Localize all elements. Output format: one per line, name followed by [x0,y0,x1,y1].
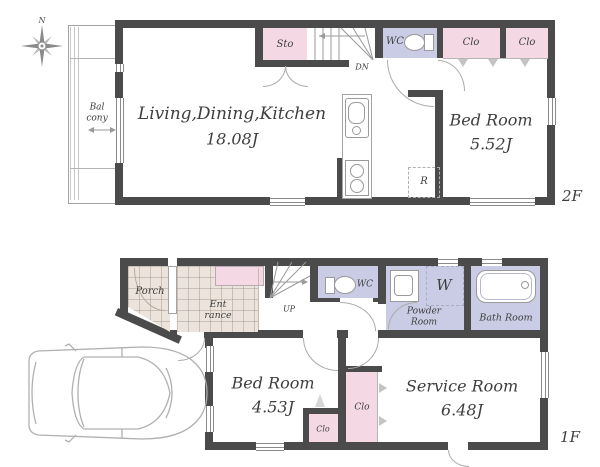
wall-segment [115,20,123,64]
door-arc [285,66,308,87]
car-illustration [22,342,212,444]
balcony-divider [70,168,116,169]
stairs-1f-icon [268,262,310,300]
wall-segment [378,330,548,338]
stairs-down-label: DN [355,62,368,71]
closet-track-line [377,372,378,442]
wall-segment [338,338,346,442]
wall-segment [547,20,555,98]
stove-burner-icon [350,179,364,193]
stairs-2f-icon [307,28,375,60]
washer-label: W [436,277,451,295]
wall-segment [375,20,383,58]
entrance-shelf [215,266,264,286]
closet-1-2f-label: Clo [463,37,480,49]
door-arc [448,450,469,467]
door-arc [263,66,286,87]
compass-north-label: N [38,16,47,25]
sliding-door-mark [379,383,387,393]
bedroom-1f-area-label: 4.53J [252,399,294,418]
kitchen-faucet-icon [352,126,361,135]
bedroom-1f-label: Bed Room [231,375,314,394]
entrance-label-line1: Ent [204,299,231,310]
wall-segment [170,330,177,338]
closet-2-2f-label: Clo [519,37,536,49]
fridge-label: R [420,176,428,188]
window-marker [270,198,305,206]
wc-1f-label: WC [357,280,373,291]
window-marker [116,98,124,163]
closet-service-label: Clo [354,403,369,414]
ldk-label: Living,Dining,Kitchen [138,104,326,124]
sliding-door-mark [379,416,387,426]
balcony-label-line1: Bal [86,102,107,113]
sliding-door-mark [458,59,468,67]
ldk-area-label: 18.08J [206,131,258,150]
balcony-label: Bal cony [86,102,107,123]
entrance-step-line [258,268,259,330]
bath-room-label: Bath Room [479,312,532,323]
floor-2f-label: 2F [562,188,582,206]
door-arc [303,338,338,371]
service-room-label: Service Room [406,378,518,397]
wall-segment [284,442,448,450]
wall-segment [468,442,548,450]
porch-label: Porch [135,286,164,298]
floor-plan-canvas: N Bal cony [0,0,600,467]
wall-segment [115,20,555,28]
window-marker [256,443,284,451]
front-door [168,266,177,314]
sliding-door-mark [520,59,530,67]
door-arc [387,60,434,107]
wall-segment [115,197,270,205]
stairs-up-label: UP [283,304,295,313]
wall-segment [120,258,128,313]
kitchen-sink-icon [348,102,365,124]
wall-segment [540,258,548,352]
window-marker [548,98,556,125]
wall-segment [255,20,263,62]
wall-segment [547,125,555,205]
window-marker [541,352,549,398]
closet-bedroom-label: Clo [316,424,330,433]
wall-segment [205,442,256,450]
window-marker [116,64,124,72]
wall-segment [305,197,470,205]
toilet-icon [404,34,425,51]
bedroom-2f-area-label: 5.52J [470,136,512,155]
door-arc [340,302,376,331]
wall-segment [115,72,123,98]
stove-burner-icon [350,164,364,178]
balcony-railing [70,27,82,200]
bath-drain-icon [521,281,529,289]
service-room-area-label: 6.48J [441,402,483,421]
entrance-label: Ent rance [204,299,231,321]
wall-segment [378,258,386,304]
storage-2f-label: Sto [277,39,294,51]
window-marker [470,198,535,206]
wall-segment [464,258,471,330]
folding-door-mark [315,394,325,407]
balcony-access-arrow [88,125,116,135]
entrance-label-line2: rance [204,310,231,321]
balcony-divider [70,58,116,59]
toilet-icon [334,276,356,294]
wc-2f-label: WC [386,36,404,48]
toilet-icon [424,34,434,51]
wall-segment [337,330,348,338]
compass-icon: N [16,14,68,72]
bedroom-2f-label: Bed Room [449,112,532,131]
balcony-label-line2: cony [86,113,107,124]
sliding-door-mark [488,59,498,67]
washbasin-icon [394,275,413,296]
floor-1f-label: 1F [560,429,580,447]
door-arc [348,338,379,369]
